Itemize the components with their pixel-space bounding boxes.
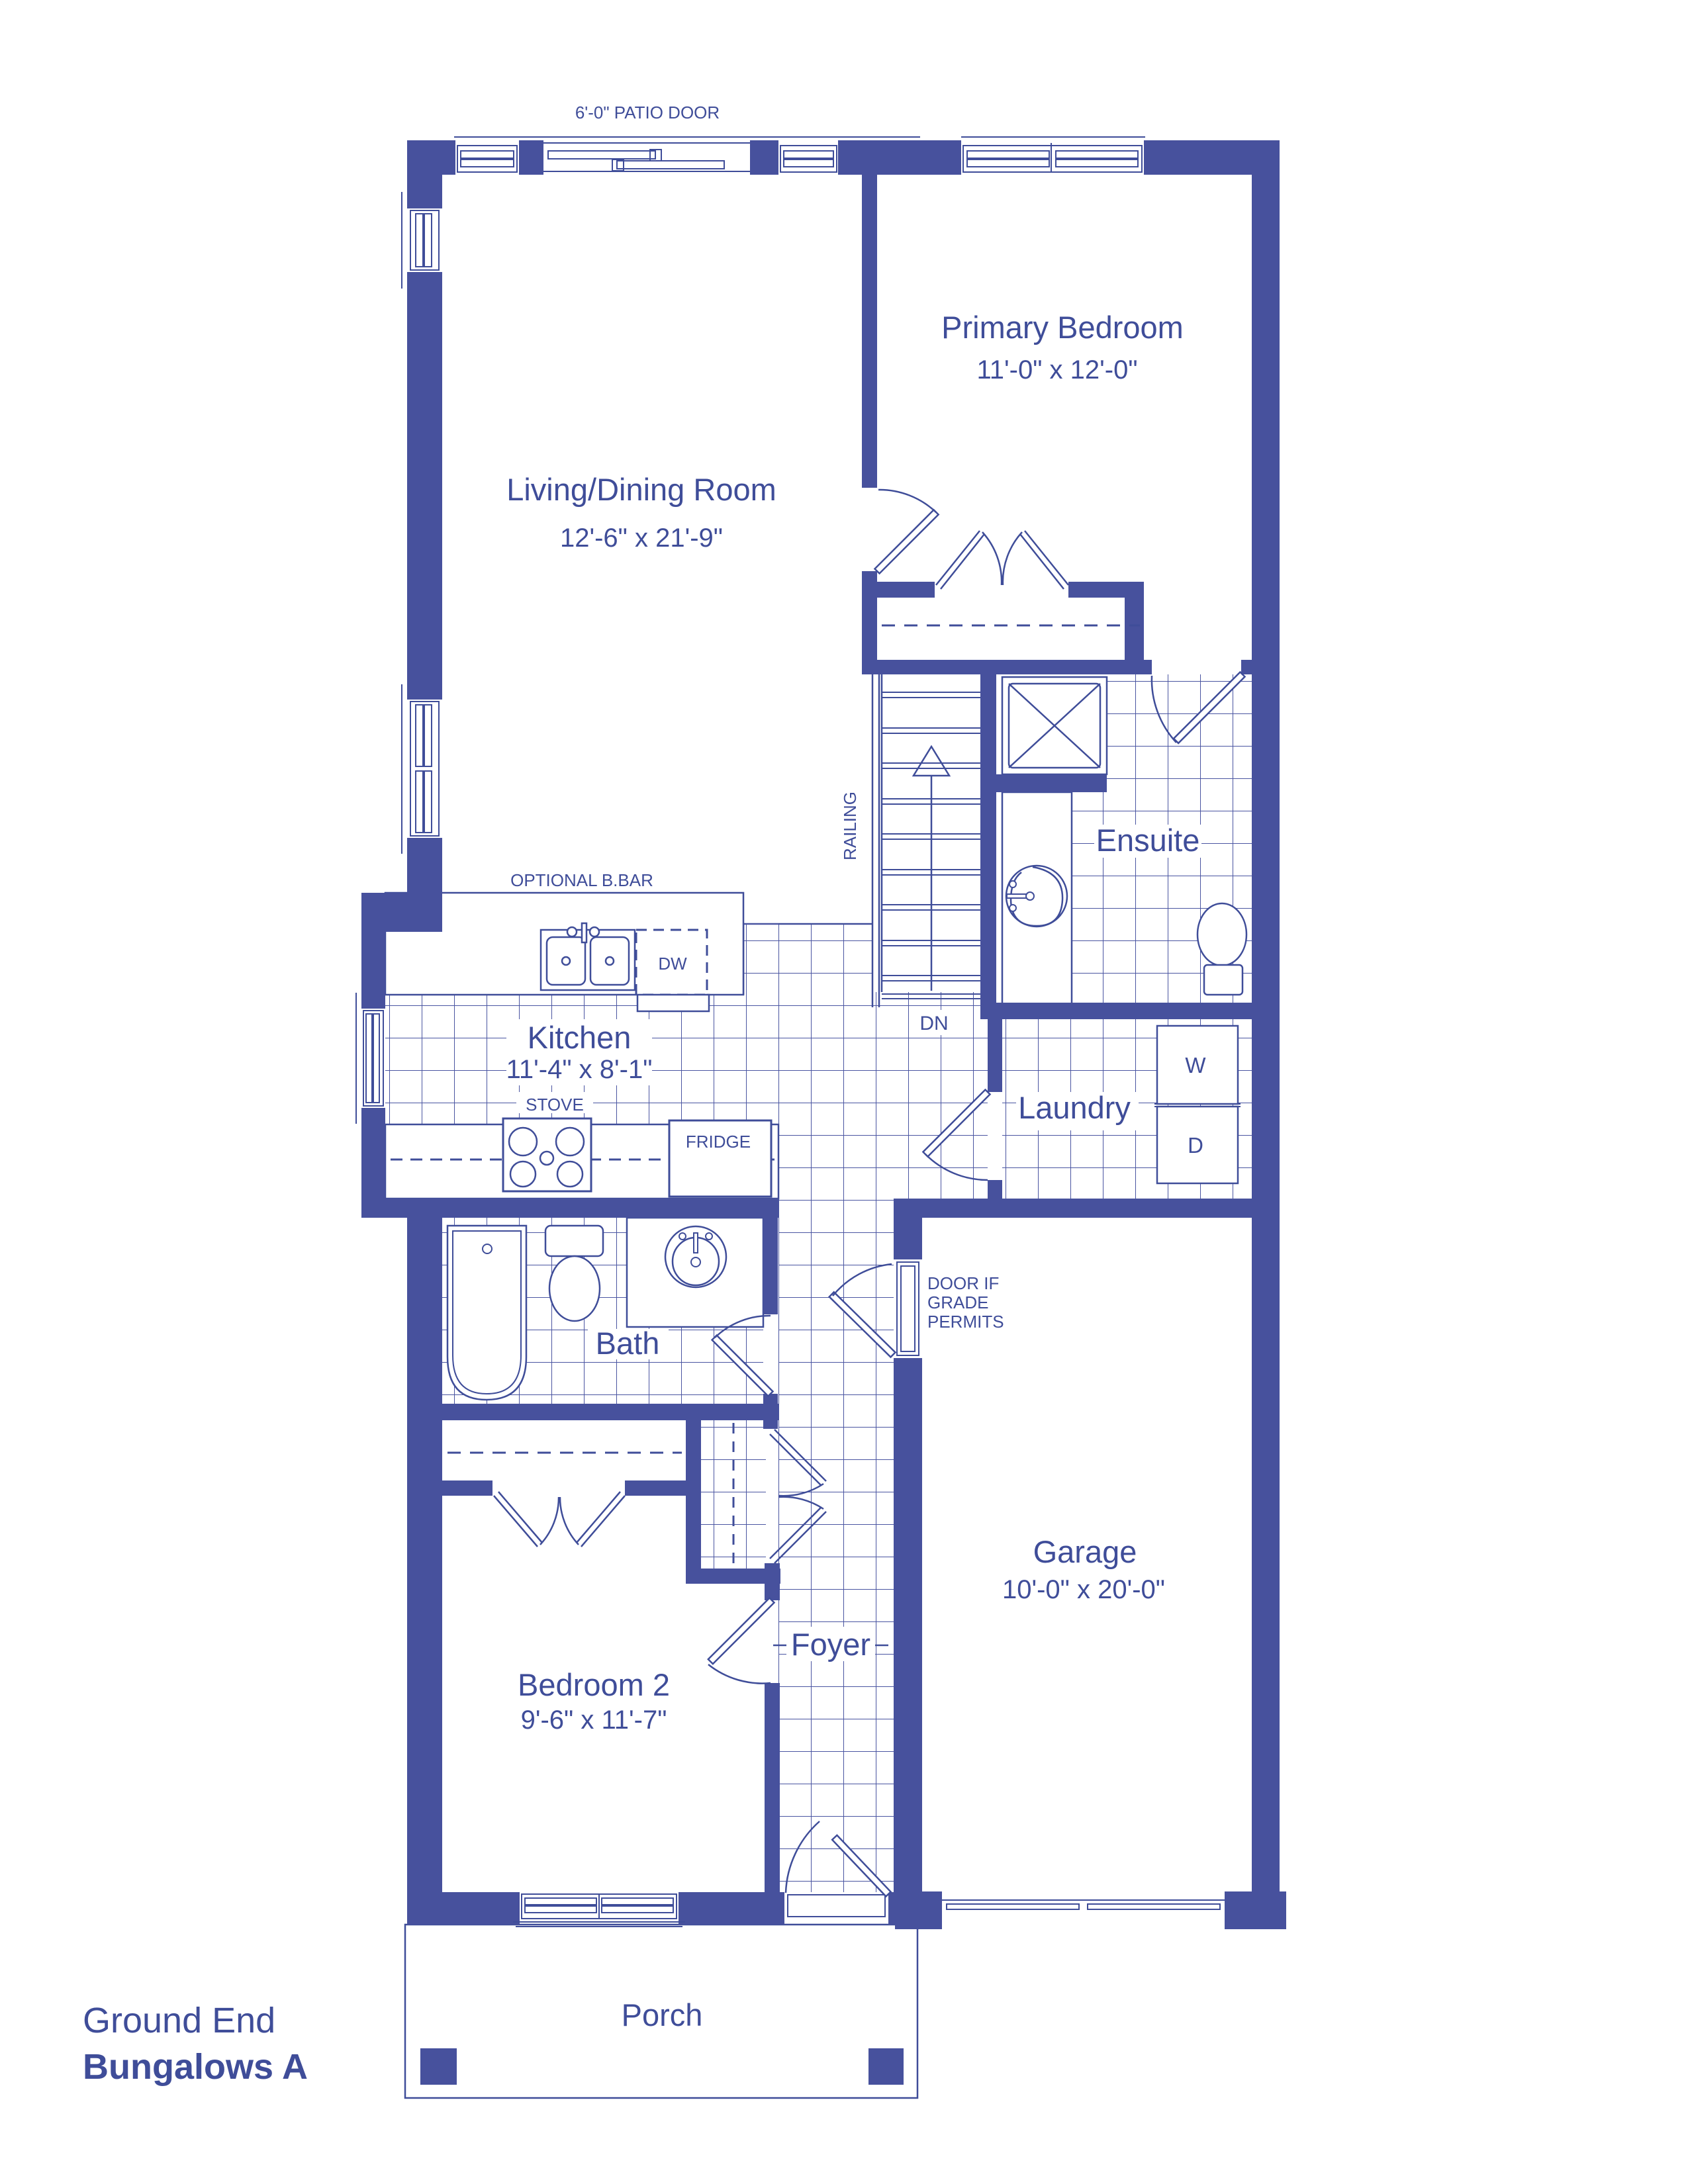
svg-text:RAILING: RAILING xyxy=(840,792,860,860)
svg-text:DN: DN xyxy=(919,1013,948,1034)
svg-text:STOVE: STOVE xyxy=(526,1095,584,1115)
svg-text:W: W xyxy=(1185,1053,1206,1077)
svg-text:Ensuite: Ensuite xyxy=(1096,823,1200,858)
svg-text:DW: DW xyxy=(658,954,687,974)
svg-text:Bungalows A: Bungalows A xyxy=(83,2047,308,2087)
svg-text:11'-0" x 12'-0": 11'-0" x 12'-0" xyxy=(976,355,1137,385)
svg-text:Laundry: Laundry xyxy=(1018,1090,1131,1125)
svg-text:6'-0" PATIO DOOR: 6'-0" PATIO DOOR xyxy=(575,103,720,122)
svg-text:Bedroom 2: Bedroom 2 xyxy=(518,1667,670,1702)
svg-text:Foyer: Foyer xyxy=(791,1627,870,1662)
svg-text:Kitchen: Kitchen xyxy=(528,1020,632,1055)
svg-text:PERMITS: PERMITS xyxy=(927,1312,1004,1332)
svg-text:FRIDGE: FRIDGE xyxy=(686,1132,751,1152)
svg-text:Porch: Porch xyxy=(622,1997,703,2032)
svg-text:11'-4" x 8'-1": 11'-4" x 8'-1" xyxy=(506,1055,653,1084)
svg-text:9'-6" x 11'-7": 9'-6" x 11'-7" xyxy=(521,1706,667,1735)
svg-text:Garage: Garage xyxy=(1033,1534,1137,1569)
svg-text:Primary Bedroom: Primary Bedroom xyxy=(941,310,1184,345)
svg-text:Bath: Bath xyxy=(596,1326,660,1361)
svg-text:Ground End: Ground End xyxy=(83,2001,275,2040)
svg-text:OPTIONAL B.BAR: OPTIONAL B.BAR xyxy=(510,870,653,890)
svg-text:Living/Dining Room: Living/Dining Room xyxy=(506,472,776,507)
svg-text:10'-0" x 20'-0": 10'-0" x 20'-0" xyxy=(1002,1575,1165,1604)
svg-text:DOOR IF: DOOR IF xyxy=(927,1273,999,1293)
svg-text:12'-6" x 21'-9": 12'-6" x 21'-9" xyxy=(560,523,723,553)
svg-text:GRADE: GRADE xyxy=(927,1293,988,1312)
svg-text:D: D xyxy=(1188,1133,1203,1158)
